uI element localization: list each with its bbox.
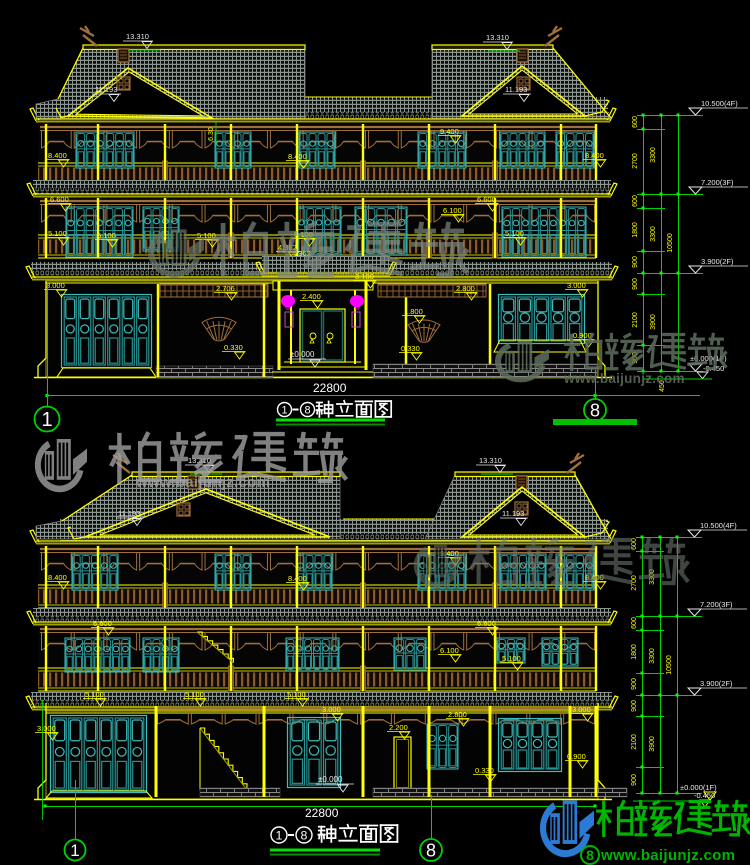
svg-text:0.900: 0.900 — [567, 752, 586, 761]
svg-text:8.400: 8.400 — [585, 151, 604, 160]
svg-text:1.800: 1.800 — [404, 307, 423, 316]
svg-text:3.000: 3.000 — [46, 281, 65, 290]
svg-text:6.100: 6.100 — [440, 646, 459, 655]
svg-text:13.310: 13.310 — [479, 456, 502, 465]
svg-text:900: 900 — [631, 678, 638, 690]
svg-text:5.100: 5.100 — [85, 690, 104, 699]
svg-text:9.400: 9.400 — [440, 127, 459, 136]
svg-text:900: 900 — [632, 256, 639, 268]
svg-text:8: 8 — [590, 400, 600, 420]
svg-text:3.900(2F): 3.900(2F) — [701, 257, 734, 266]
svg-text:2.800: 2.800 — [456, 284, 475, 293]
svg-text:3.900(2F): 3.900(2F) — [700, 679, 733, 688]
svg-text:2100: 2100 — [631, 734, 638, 750]
svg-text:-0.450: -0.450 — [694, 791, 715, 800]
svg-text:11.193: 11.193 — [502, 509, 524, 518]
svg-text:3300: 3300 — [650, 226, 657, 242]
svg-text:8: 8 — [586, 847, 594, 863]
svg-text:8.400: 8.400 — [48, 151, 67, 160]
svg-text:11.193: 11.193 — [95, 85, 117, 94]
svg-text:2.706: 2.706 — [216, 284, 235, 293]
svg-text:1: 1 — [41, 409, 52, 431]
svg-text:600: 600 — [632, 195, 639, 207]
svg-text:1: 1 — [70, 841, 79, 860]
svg-text:www.baijunjz.com: www.baijunjz.com — [600, 847, 735, 864]
svg-text:5.100: 5.100 — [502, 654, 521, 663]
svg-text:7.200(3F): 7.200(3F) — [700, 600, 733, 609]
svg-text:1800: 1800 — [631, 644, 638, 660]
svg-text:3.100: 3.100 — [355, 272, 374, 281]
svg-text:5.100: 5.100 — [185, 690, 204, 699]
svg-text:8.400: 8.400 — [288, 152, 307, 161]
svg-text:8.400: 8.400 — [288, 574, 307, 583]
svg-text:0.330: 0.330 — [224, 343, 243, 352]
svg-text:3.000: 3.000 — [567, 281, 586, 290]
svg-text:8.400: 8.400 — [48, 573, 67, 582]
svg-text:900: 900 — [632, 278, 639, 290]
svg-text:13.310: 13.310 — [126, 32, 149, 41]
svg-text:11.193: 11.193 — [118, 509, 140, 518]
svg-text:10500: 10500 — [667, 233, 674, 253]
svg-text:2.800: 2.800 — [448, 710, 467, 719]
svg-text:1: 1 — [281, 404, 287, 416]
svg-text:www.baijunjz.com: www.baijunjz.com — [135, 474, 270, 491]
svg-text:2700: 2700 — [632, 153, 639, 169]
svg-text:0.330: 0.330 — [475, 766, 494, 775]
svg-text:600: 600 — [632, 116, 639, 128]
svg-text:10500: 10500 — [666, 655, 673, 675]
svg-text:900: 900 — [631, 700, 638, 712]
svg-text:0.330: 0.330 — [401, 344, 420, 353]
svg-text:±0.000: ±0.000 — [318, 775, 343, 784]
svg-text:5.100: 5.100 — [287, 690, 306, 699]
svg-text:8: 8 — [301, 828, 308, 842]
svg-text:22800: 22800 — [313, 381, 347, 395]
svg-text:3.000: 3.000 — [37, 724, 56, 733]
svg-text:8: 8 — [304, 404, 310, 416]
svg-text:11.193: 11.193 — [505, 85, 527, 94]
svg-text:2.200: 2.200 — [389, 723, 408, 732]
svg-text:3900: 3900 — [650, 314, 657, 330]
svg-text:2.400: 2.400 — [302, 292, 321, 301]
svg-text:8: 8 — [426, 840, 436, 860]
svg-text:10.500(4F): 10.500(4F) — [701, 99, 738, 108]
svg-text:3.000: 3.000 — [572, 705, 591, 714]
svg-text:5.100: 5.100 — [48, 229, 67, 238]
svg-text:6.100: 6.100 — [443, 206, 462, 215]
svg-text:6.600: 6.600 — [50, 195, 69, 204]
svg-text:6.600: 6.600 — [477, 619, 496, 628]
svg-text:900: 900 — [631, 774, 638, 786]
svg-text:13.310: 13.310 — [486, 33, 509, 42]
svg-text:±0.000: ±0.000 — [290, 350, 315, 359]
svg-text:3.000: 3.000 — [322, 705, 341, 714]
svg-text:600: 600 — [631, 617, 638, 629]
svg-text:3900: 3900 — [649, 736, 656, 752]
svg-text:www.baijunjz.com: www.baijunjz.com — [563, 371, 685, 386]
svg-text:7.200(3F): 7.200(3F) — [701, 178, 734, 187]
svg-text:6.600: 6.600 — [93, 619, 112, 628]
svg-text:600: 600 — [631, 538, 638, 550]
svg-text:22800: 22800 — [305, 806, 339, 820]
svg-text:3300: 3300 — [650, 147, 657, 163]
svg-text:3300: 3300 — [649, 648, 656, 664]
svg-text:6.30: 6.30 — [208, 127, 215, 141]
svg-text:5.100: 5.100 — [97, 231, 116, 240]
svg-text:6.600: 6.600 — [477, 195, 496, 204]
svg-text:10.500(4F): 10.500(4F) — [700, 521, 737, 530]
svg-text:5.100: 5.100 — [505, 229, 524, 238]
svg-text:2100: 2100 — [632, 312, 639, 328]
svg-text:1800: 1800 — [632, 222, 639, 238]
svg-text:1: 1 — [276, 828, 283, 842]
